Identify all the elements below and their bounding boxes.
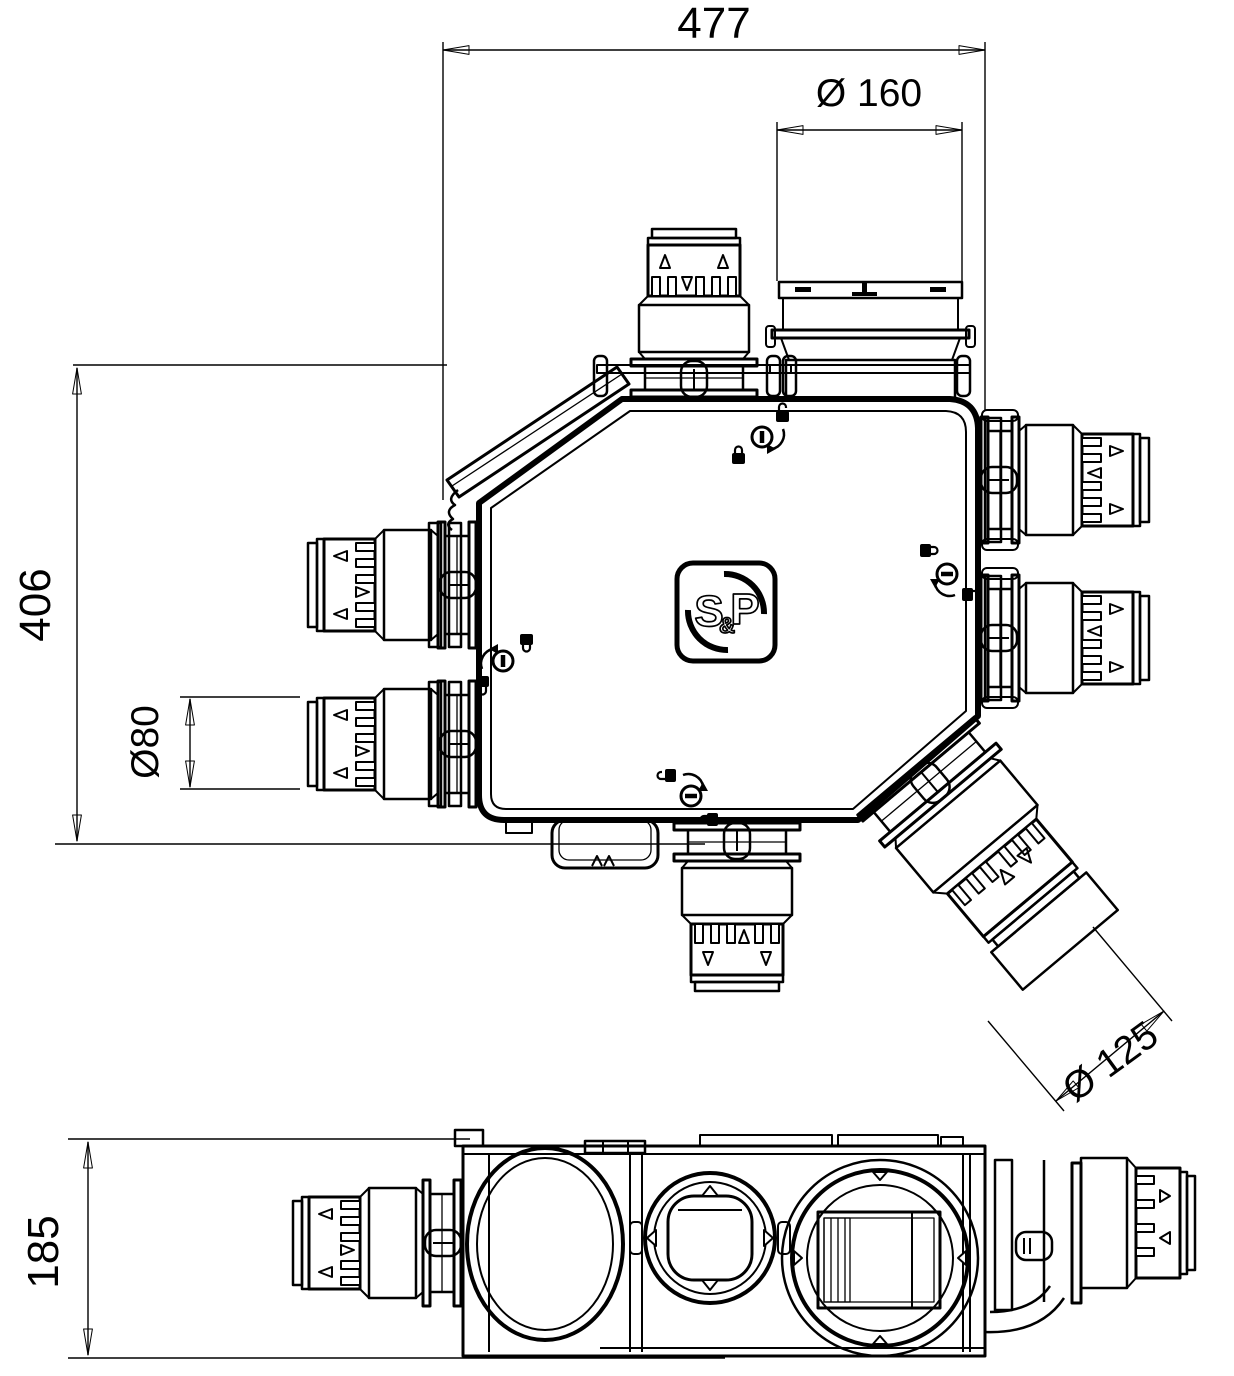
large-port-opening-inner <box>477 1158 613 1330</box>
side-view <box>293 1130 1195 1356</box>
diagonal-port-diameter-label: Ø 125 <box>1055 1013 1166 1110</box>
lock-icon-top <box>732 404 789 465</box>
small-port-diameter-label: Ø80 <box>124 705 167 779</box>
overall-height-label: 406 <box>11 568 60 641</box>
spigot-top <box>631 229 757 397</box>
dimension-diagonal-port-diameter: Ø 125 <box>988 927 1172 1111</box>
spigot-left-lower <box>308 681 476 807</box>
fan-port-ring <box>782 1160 978 1356</box>
corner-cover-plate <box>447 367 629 530</box>
port-160 <box>766 282 975 398</box>
dimension-body-depth: 185 <box>19 1139 725 1358</box>
top-view: S & P <box>308 229 1149 999</box>
lock-icon-left <box>476 634 533 695</box>
spigot-diagonal-125 <box>858 717 1129 999</box>
dimension-small-port-diameter: Ø80 <box>124 697 300 789</box>
overall-width-label: 477 <box>677 0 750 48</box>
large-port-opening <box>467 1148 623 1340</box>
spigot-left-upper <box>308 522 476 648</box>
side-clamp-right <box>985 1160 1081 1332</box>
middle-port-ring <box>630 1173 790 1303</box>
spigot-right-lower <box>981 575 1149 701</box>
brand-logo: S & P <box>677 563 775 661</box>
dimension-top-port-diameter: Ø 160 <box>777 72 962 281</box>
spigot-bottom <box>674 823 800 991</box>
spigot-right-upper <box>981 417 1149 543</box>
housing-body <box>479 399 978 820</box>
side-spigot-right <box>1081 1158 1195 1288</box>
ventilation-unit-drawing: S & P <box>0 0 1234 1376</box>
side-spigot-left <box>293 1180 461 1306</box>
top-port-diameter-label: Ø 160 <box>816 72 922 115</box>
body-depth-label: 185 <box>19 1215 68 1288</box>
technical-drawing-page: S & P <box>0 0 1234 1376</box>
logo-letter-p: P <box>730 585 759 634</box>
lock-icon-right <box>920 544 981 601</box>
fan-wheel-window <box>818 1212 940 1308</box>
